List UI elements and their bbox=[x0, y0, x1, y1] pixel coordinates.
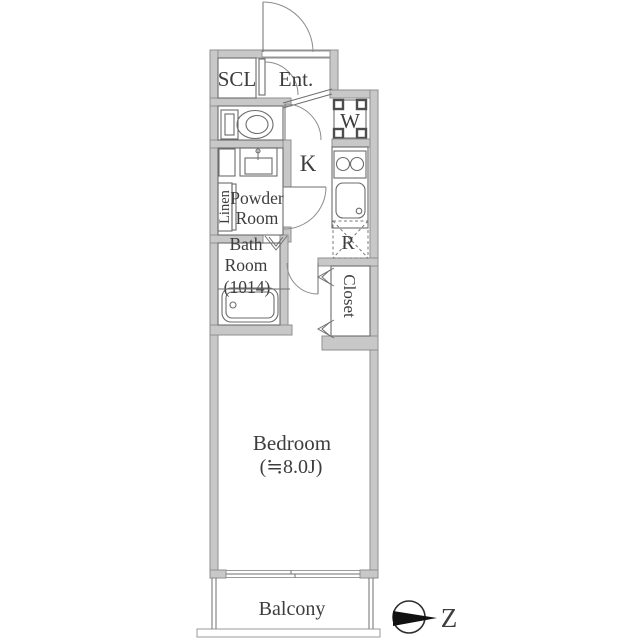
scl-label: SCL bbox=[218, 67, 257, 91]
north-arrow-icon bbox=[393, 611, 437, 626]
wall-window-right-stub bbox=[360, 570, 378, 578]
wall-left-outer bbox=[210, 50, 218, 578]
floorplan-canvas: Z SCL Ent. K W R Powder Room Linen Bath … bbox=[0, 0, 640, 640]
entrance-label: Ent. bbox=[279, 67, 313, 91]
compass: Z bbox=[393, 601, 457, 633]
kitchen-label: K bbox=[300, 151, 317, 176]
bedroom-window-icon bbox=[226, 571, 360, 578]
wall-closet-bottom bbox=[322, 336, 378, 350]
wall-bath-bottom bbox=[210, 325, 292, 335]
bedroom-size-label: (≒8.0J) bbox=[260, 456, 323, 478]
wall-bedroom-closet-top bbox=[318, 258, 378, 266]
closet-label: Closet bbox=[340, 274, 359, 318]
balcony-label: Balcony bbox=[259, 598, 326, 620]
wall-scl-bottom bbox=[210, 98, 291, 106]
bedroom-label: Bedroom bbox=[253, 431, 331, 455]
floorplan-svg: Z SCL Ent. K W R Powder Room Linen Bath … bbox=[0, 0, 640, 640]
wall-corridor-mid bbox=[283, 140, 291, 187]
powder-room-label-line1: Powder bbox=[230, 188, 284, 208]
kitchen-counter bbox=[332, 147, 368, 228]
bedroom-door bbox=[287, 263, 318, 294]
wall-bath-right bbox=[280, 235, 288, 330]
front-door-sill bbox=[262, 51, 330, 57]
bath-label-line1: Bath bbox=[229, 234, 262, 254]
powder-room-label-line2: Room bbox=[236, 208, 279, 228]
wall-window-left-stub bbox=[210, 570, 226, 578]
linen-label: Linen bbox=[217, 189, 233, 224]
wall-right-outer bbox=[370, 90, 378, 578]
toilet-door bbox=[285, 104, 321, 140]
powder-door bbox=[284, 187, 326, 229]
wall-toilet-powder-divider bbox=[210, 140, 283, 148]
bath-label-line2: Room bbox=[225, 255, 268, 275]
washer-label: W bbox=[340, 109, 360, 133]
fridge-label: R bbox=[341, 232, 355, 254]
bath-label-line3: (1014) bbox=[224, 277, 271, 297]
north-label: Z bbox=[441, 603, 458, 633]
front-door bbox=[263, 2, 313, 52]
